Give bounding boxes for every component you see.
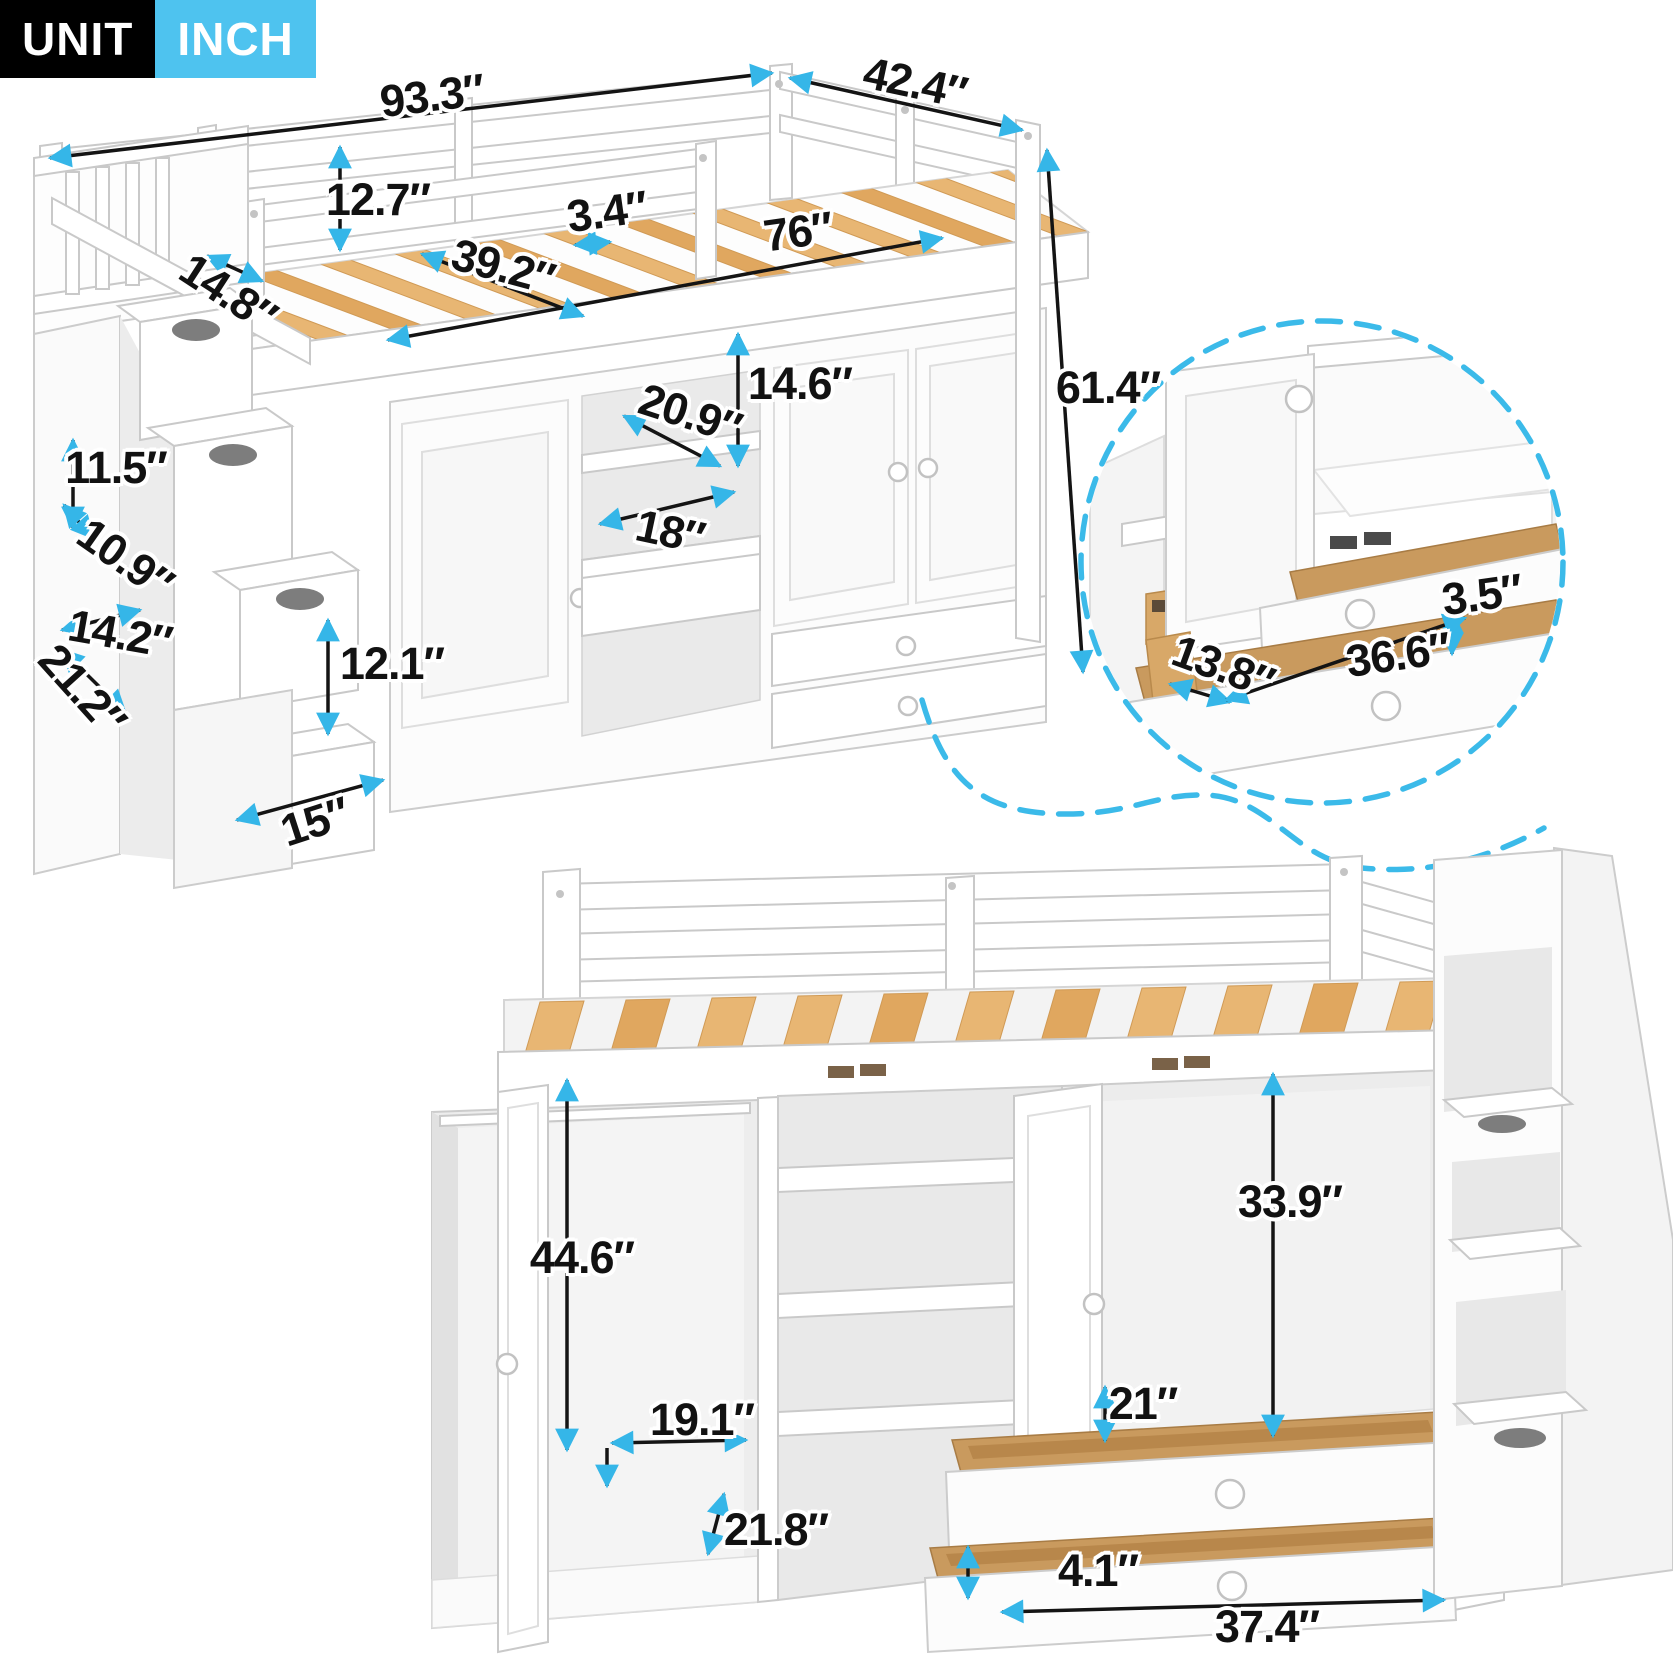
dimension-diagram: UNIT INCH 93.3″ 42.4″ 12.7″ 3.4″ 76″ 39.… xyxy=(0,0,1673,1673)
dim-label-guardrail-height: 12.7″ xyxy=(326,174,430,226)
dim-label-right-inner-height: 33.9″ xyxy=(1238,1176,1342,1228)
dim-label-upper-cubby-height: 14.6″ xyxy=(748,358,852,410)
dim-label-slat-gap: 3.4″ xyxy=(564,181,651,244)
dim-label-overall-height: 61.4″ xyxy=(1056,362,1160,414)
unit-label: UNIT xyxy=(0,0,155,78)
dim-label-inner-depth: 21.8″ xyxy=(724,1504,828,1556)
dim-label-wardrobe-inner-height: 44.6″ xyxy=(530,1232,634,1284)
open-view-staircase xyxy=(1434,848,1673,1600)
unit-value: INCH xyxy=(155,0,315,78)
dim-label-drawer-inner-height: 3.5″ xyxy=(1439,564,1526,627)
furniture-illustration xyxy=(0,0,1673,1673)
dim-label-left-inner-width: 19.1″ xyxy=(650,1394,754,1446)
dim-label-sleep-length: 76″ xyxy=(760,201,835,262)
unit-badge: UNIT INCH xyxy=(0,0,316,78)
dim-label-step-box-height: 12.1″ xyxy=(340,638,444,690)
dim-label-stair-rail-height: 11.5″ xyxy=(65,442,167,494)
open-view-drawers xyxy=(925,1412,1456,1652)
dim-label-drawer-front-height: 4.1″ xyxy=(1058,1545,1138,1597)
dim-label-drawer-width: 37.4″ xyxy=(1215,1601,1319,1653)
dim-label-drawer-compartment-height: 21″ xyxy=(1109,1378,1178,1430)
